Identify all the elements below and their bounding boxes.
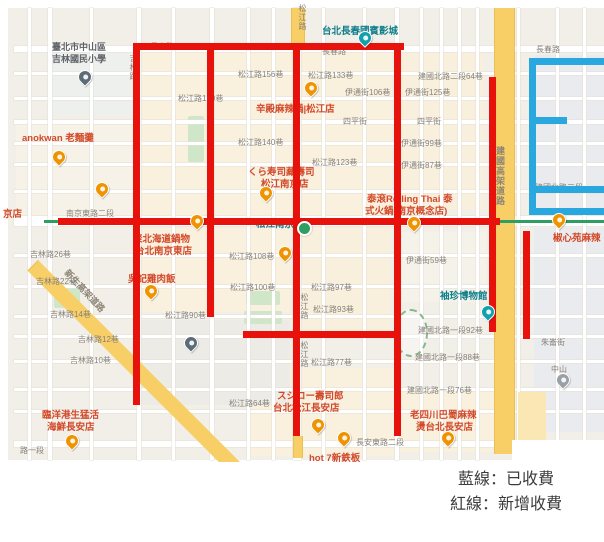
poi-label[interactable]: 椒心苑麻辣 <box>553 230 601 244</box>
street <box>14 97 604 100</box>
poi-label[interactable]: 台北松江長安店 <box>273 400 340 414</box>
red-fee-line-segment <box>207 43 214 317</box>
red-fee-line-segment <box>523 231 530 339</box>
legend-blue-line: 藍線：已收費 <box>408 466 604 491</box>
street-label: 松江路93巷 <box>313 304 354 315</box>
songjiang-road-south <box>293 436 303 458</box>
street-label: 長安東路二段 <box>356 437 404 448</box>
street-label: 松江路 <box>299 293 310 320</box>
street-label: 松江路64巷 <box>229 398 270 409</box>
street-label: 松江路100巷 <box>230 282 275 293</box>
street-label: 伊通街99巷 <box>401 138 442 149</box>
poi-label[interactable]: anokwan 老麵攤 <box>22 130 94 144</box>
school-label: 吉林國民小學 <box>52 52 106 65</box>
red-fee-line-segment <box>58 218 500 225</box>
street-label: 吉林路26巷 <box>30 249 71 260</box>
legend-red-line: 紅線：新增收費 <box>408 491 604 516</box>
poi-label[interactable]: 京店 <box>3 206 22 220</box>
screenshot-root: 臺北市中山區吉林國民小學長春路長春路長春路台北長春國賓影城松江路156巷松江路1… <box>0 0 604 542</box>
street-label: 松江路 <box>299 341 310 368</box>
blue-fee-line-segment <box>529 117 567 124</box>
street-label: 建國北路二段64巷 <box>418 71 483 82</box>
poi-label[interactable]: 海鮮長安店 <box>47 419 95 433</box>
blue-fee-line-segment <box>529 58 604 65</box>
street <box>14 142 604 145</box>
red-fee-line-segment <box>243 331 397 338</box>
legend: 藍線：已收費 紅線：新增收費 <box>408 466 604 516</box>
street-label: 伊通街87巷 <box>401 160 442 171</box>
street-label: 長春路 <box>536 44 560 55</box>
street-label: 松江路97巷 <box>311 282 352 293</box>
street-label: 松江路133巷 <box>308 70 353 81</box>
street-label: 路一段 <box>20 445 44 456</box>
street-label: 松江路77巷 <box>311 357 352 368</box>
street-label: 朱崙街 <box>541 337 565 348</box>
street-label: 建國北路一段76巷 <box>407 385 472 396</box>
street <box>14 254 604 257</box>
street-label: 伊通街59巷 <box>406 255 447 266</box>
street-label: 松江路90巷 <box>165 310 206 321</box>
street-label: 伊通街125巷 <box>405 87 450 98</box>
street <box>363 8 366 460</box>
street-label: 松江路 <box>297 4 308 31</box>
street-label: 吉林路12巷 <box>78 334 119 345</box>
street-label: 四平街 <box>417 116 441 127</box>
blue-fee-line-segment <box>529 208 604 215</box>
red-fee-line-segment <box>394 46 401 436</box>
street-label: 伊通街106巷 <box>345 87 390 98</box>
street-label: 松江路123巷 <box>312 157 357 168</box>
poi-label[interactable]: 台北南京東店 <box>135 243 192 257</box>
street-label: 松江路140巷 <box>238 137 283 148</box>
street <box>48 8 52 460</box>
blue-fee-line-segment <box>529 186 604 193</box>
red-fee-line-segment <box>489 77 496 332</box>
street-label: 吉林路10巷 <box>70 355 111 366</box>
street-label: 建國北路一段92巷 <box>418 325 483 336</box>
street-label: 吉林路14巷 <box>50 309 91 320</box>
street-label: 松江路108巷 <box>229 251 274 262</box>
street <box>28 8 31 460</box>
street-label: 建國北路一段88巷 <box>415 352 480 363</box>
red-fee-line-segment <box>293 43 300 436</box>
jianguo-elevated-road <box>494 8 515 454</box>
street-label: 四平街 <box>343 116 367 127</box>
metro-station-icon[interactable] <box>297 221 312 236</box>
street-label: 松江路150巷 <box>178 93 223 104</box>
transit-label[interactable]: 袖珍博物館 <box>440 288 488 302</box>
street <box>14 285 604 288</box>
red-fee-line-segment <box>133 43 140 405</box>
street <box>14 120 604 124</box>
street-label: 松江路156巷 <box>238 69 283 80</box>
poi-label[interactable]: 式火鍋(南京概念店) <box>365 203 447 217</box>
